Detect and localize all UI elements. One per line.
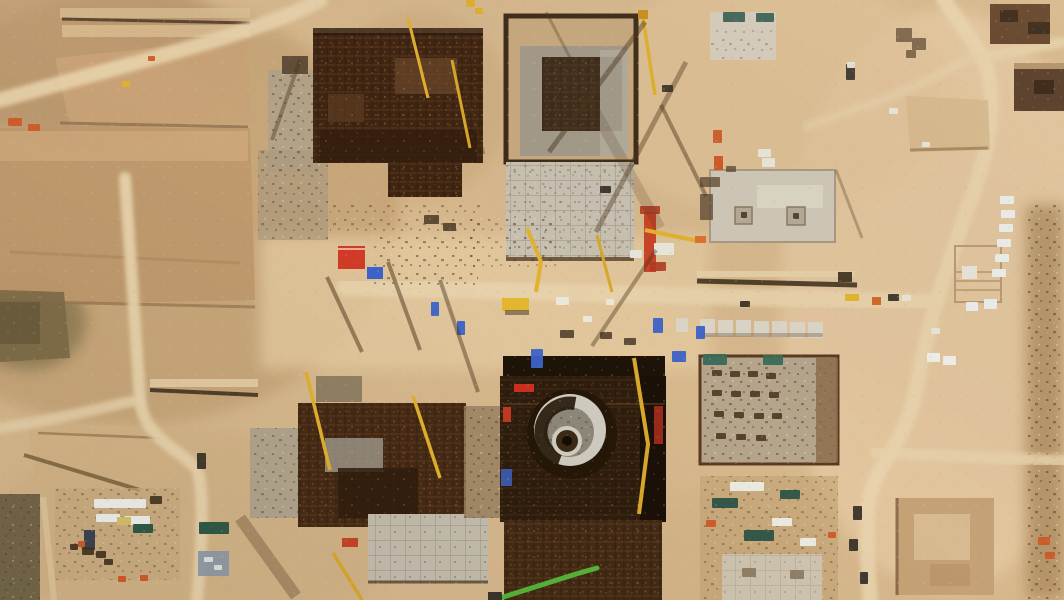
satellite-scene bbox=[0, 0, 1064, 600]
light-sheen-overlay bbox=[0, 0, 1064, 600]
scene-layer bbox=[0, 0, 1064, 600]
satellite-view bbox=[0, 0, 1064, 600]
